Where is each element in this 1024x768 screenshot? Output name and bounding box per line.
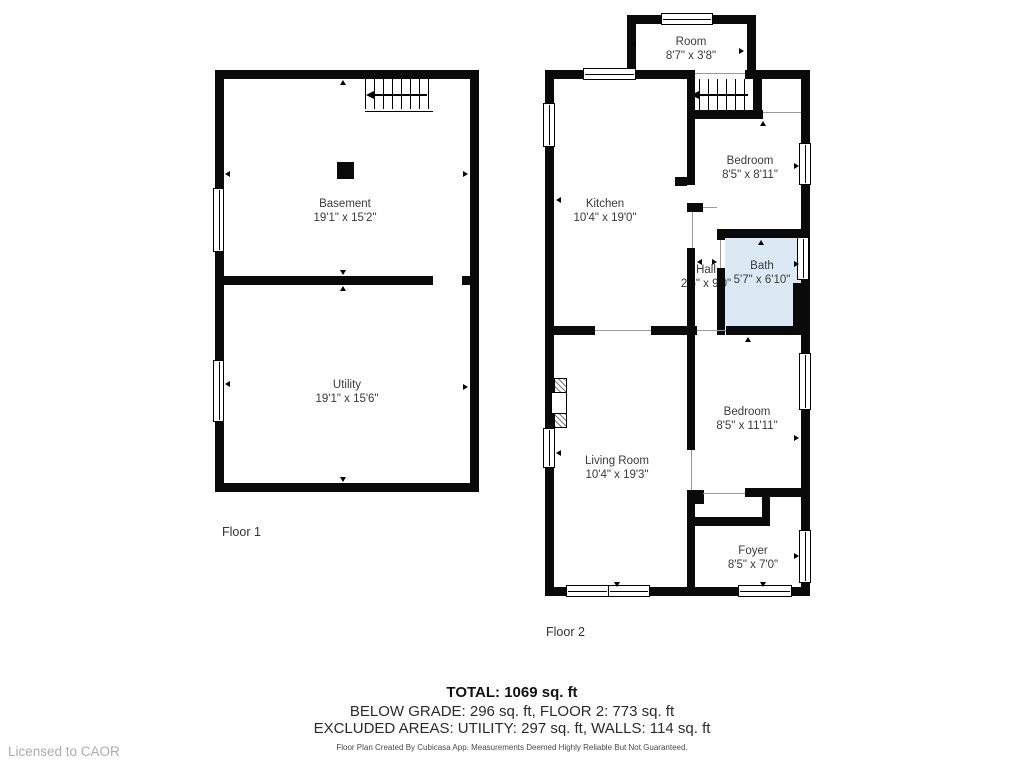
bath-label: Bath 5'7" x 6'10"	[734, 259, 791, 287]
bedroom2-door-line	[703, 493, 745, 494]
kitchen-door-line	[692, 210, 693, 248]
tick-icon	[463, 384, 468, 390]
tick-icon	[463, 171, 468, 177]
room-dims: 5'7" x 6'10"	[734, 273, 791, 287]
basement-label: Basement 19'1" x 15'2"	[313, 197, 376, 225]
mid-wall-right	[726, 326, 810, 335]
tick-icon	[794, 261, 799, 267]
room-name: Utility	[315, 378, 378, 392]
stair-open-line	[763, 112, 801, 113]
fireplace-inner	[551, 392, 567, 414]
tick-icon	[340, 286, 346, 291]
room-name: Bedroom	[716, 405, 777, 419]
tick-icon	[340, 477, 346, 482]
bedroom1-opening-line	[703, 207, 717, 208]
f1-stairs-arrow	[373, 94, 427, 96]
tick-icon	[556, 197, 561, 203]
tick-icon	[758, 240, 764, 245]
bedroom1-bottom-wall	[687, 203, 703, 212]
tick-icon	[697, 259, 702, 265]
bath-window-icon	[797, 237, 809, 280]
kitchen-right-wall-lower	[687, 248, 695, 335]
f1-right-wall	[470, 70, 479, 492]
tick-icon	[556, 450, 561, 456]
kitchen-right-wall-upper	[687, 70, 695, 185]
tick-icon	[739, 48, 744, 54]
tick-icon	[340, 80, 346, 85]
tick-icon	[225, 171, 230, 177]
bedroom1-label: Bedroom 8'5" x 8'11"	[722, 154, 778, 182]
room-name: Living Room	[585, 454, 649, 468]
f1-top-wall	[215, 70, 479, 79]
bath-door-line	[720, 240, 721, 268]
tick-icon	[760, 582, 766, 587]
total-area-text: TOTAL: 1069 sq. ft	[0, 684, 1024, 701]
tick-icon	[614, 582, 620, 587]
room-dims: 8'5" x 11'11"	[716, 419, 777, 433]
living-foyer-door-line	[691, 450, 692, 490]
hall-bedroom2-door-line	[697, 330, 726, 331]
bedroom2-bottom-wall	[745, 488, 810, 497]
f1-bottom-wall	[215, 483, 479, 492]
excluded-area-text: EXCLUDED AREAS: UTILITY: 297 sq. ft, WAL…	[0, 720, 1024, 737]
bath-left-wall-lower	[717, 268, 725, 335]
bedroom2-window-icon	[799, 353, 811, 410]
tick-icon	[225, 381, 230, 387]
room-dims: 10'4" x 19'0"	[573, 211, 636, 225]
room-name: Bedroom	[722, 154, 778, 168]
room-name: Kitchen	[573, 197, 636, 211]
floorplan-canvas: Basement 19'1" x 15'2" Utility 19'1" x 1…	[0, 0, 1024, 768]
f1-divider-wall	[215, 276, 433, 285]
basement-window-icon	[213, 188, 224, 252]
tick-icon	[760, 121, 766, 126]
room-dims: 19'1" x 15'2"	[313, 211, 376, 225]
bath-left-wall-upper	[717, 229, 725, 240]
room-dims: 8'7" x 3'8"	[666, 49, 716, 63]
foyer-right-window-icon	[799, 530, 811, 583]
living-bottom-window-a-icon	[566, 585, 609, 597]
floor2-title: Floor 2	[546, 625, 585, 639]
kitchen-label: Kitchen 10'4" x 19'0"	[573, 197, 636, 225]
foyer-label: Foyer 8'5" x 7'0"	[728, 544, 778, 572]
room-name: Room	[666, 35, 716, 49]
tick-icon	[340, 270, 346, 275]
f2-top-opening-line	[690, 73, 745, 74]
bedroom2-label: Bedroom 8'5" x 11'11"	[716, 405, 777, 433]
living-left-window-icon	[543, 428, 555, 468]
foyer-corner-wall	[762, 488, 770, 526]
f1-divider-stub	[462, 276, 470, 285]
utility-label: Utility 19'1" x 15'6"	[315, 378, 378, 406]
utility-window-icon	[213, 360, 224, 422]
mid-wall-center	[651, 326, 697, 335]
room-name: Foyer	[728, 544, 778, 558]
f2-stairs-arrow	[698, 94, 748, 96]
tick-icon	[794, 163, 799, 169]
living-room-label: Living Room 10'4" x 19'3"	[585, 454, 649, 482]
tick-icon	[745, 337, 751, 342]
room-name: Bath	[734, 259, 791, 273]
kitchen-top-window-icon	[583, 68, 636, 80]
kitchen-living-door-line	[595, 330, 651, 331]
room-dims: 8'5" x 8'11"	[722, 168, 778, 182]
licensed-to-text: Licensed to CAOR	[8, 744, 120, 759]
disclaimer-text: Floor Plan Created By Cubicasa App. Meas…	[0, 743, 1024, 752]
room-name: Basement	[313, 197, 376, 211]
tick-icon	[712, 259, 717, 265]
f1-post	[337, 162, 354, 179]
bedroom1-window-icon	[799, 143, 811, 185]
floor1-title: Floor 1	[222, 525, 261, 539]
living-right-wall-upper	[687, 335, 695, 450]
kitchen-left-window-icon	[543, 103, 555, 147]
grade-area-text: BELOW GRADE: 296 sq. ft, FLOOR 2: 773 sq…	[0, 703, 1024, 720]
mid-wall-left	[545, 326, 595, 335]
tick-icon	[631, 41, 636, 47]
f1-stairs-arrowhead-icon	[366, 91, 374, 99]
room-dims: 10'4" x 19'3"	[585, 468, 649, 482]
kitchen-wall-stub	[675, 177, 687, 186]
living-right-wall-lower	[687, 490, 695, 596]
stair-bottom-wall	[687, 110, 763, 119]
room-right-wall	[747, 15, 756, 70]
tick-icon	[794, 553, 799, 559]
room-window-icon	[661, 13, 713, 25]
bath-right-bump-wall	[793, 283, 801, 327]
tick-icon	[794, 435, 799, 441]
foyer-top-wall	[687, 517, 770, 526]
room-label: Room 8'7" x 3'8"	[666, 35, 716, 63]
room-dims: 8'5" x 7'0"	[728, 558, 778, 572]
f1-stairs-bottom-line	[365, 111, 433, 112]
room-dims: 19'1" x 15'6"	[315, 392, 378, 406]
